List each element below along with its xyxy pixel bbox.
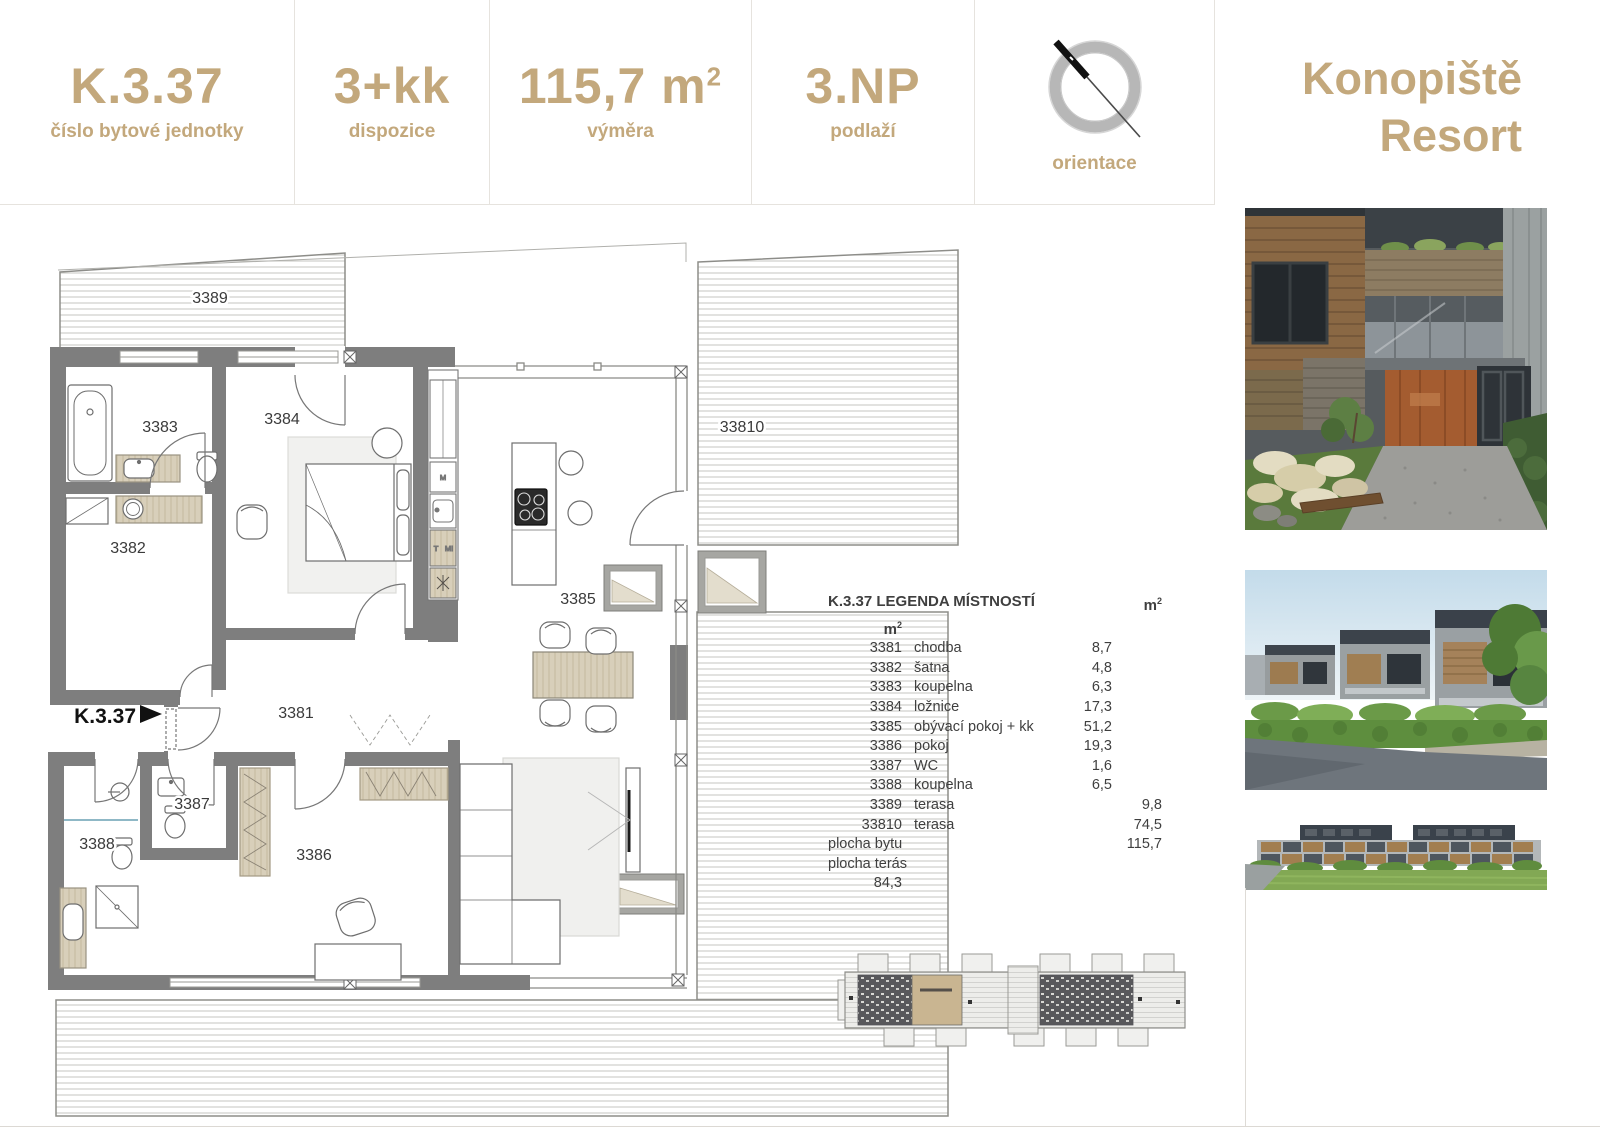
legend-unit-2: m2 [828, 616, 902, 640]
bathroom-3388-fixtures [60, 783, 138, 968]
toilet [165, 814, 185, 838]
elevation-render-graphic [1245, 820, 1547, 890]
entrance-marker: K.3.37 [74, 705, 162, 728]
brand-title: Konopiště Resort [1215, 0, 1600, 205]
basin [63, 904, 83, 940]
appliance-label-mi: MI [445, 544, 453, 553]
legend-row: 3385obývací pokoj + kk51,2 [828, 718, 1162, 738]
area-value: 115,7 m2 [519, 61, 722, 111]
kitchen-appliance-column: M T MI [428, 370, 458, 600]
terrace-bottom-strip [56, 1000, 948, 1116]
legend-row: 3388koupelna6,5 [828, 776, 1162, 796]
appliance-label-m: M [440, 473, 446, 482]
nightstand [372, 428, 402, 458]
street-render-graphic [1245, 570, 1547, 790]
brand-line1: Konopiště [1215, 50, 1522, 107]
legend-unit-1: m2 [1112, 592, 1162, 616]
legend-row: 3383koupelna6,3 [828, 678, 1162, 698]
wardrobe [240, 768, 270, 876]
entrance-door-leaf [166, 709, 176, 749]
mini-highlighted-unit [912, 975, 962, 1025]
closet-3382-fixtures [66, 496, 202, 524]
entrance-render-graphic [1245, 208, 1547, 530]
room-label-3382: 3382 [110, 540, 146, 557]
layout-label: dispozice [349, 121, 436, 143]
layout-value: 3+kk [334, 61, 451, 111]
compass-icon [1034, 29, 1156, 151]
legend-total-apartment: plocha bytu115,7 [828, 835, 1162, 855]
room-label-3389: 3389 [192, 290, 228, 307]
entrance-arrow-icon [140, 705, 162, 723]
legend-row: 3387WC1,6 [828, 757, 1162, 777]
header-strip: K.3.37 číslo bytové jednotky 3+kk dispoz… [0, 0, 1215, 205]
legend-row: 3384ložnice17,3 [828, 698, 1162, 718]
room-label-3385: 3385 [560, 591, 596, 608]
header-cell-area: 115,7 m2 výměra [490, 0, 752, 204]
room-label-33810: 33810 [720, 419, 765, 436]
room-label-3384: 3384 [264, 411, 300, 428]
appliance-label-t: T [434, 544, 439, 553]
hall-closet-mark [350, 715, 430, 745]
bar-stool [568, 501, 592, 525]
window-bench-1 [604, 565, 662, 611]
legend-header-row: K.3.37 LEGENDA MÍSTNOSTÍ m2 m2 [828, 592, 1162, 639]
legend-row: 3382šatna4,8 [828, 659, 1162, 679]
room-label-3386: 3386 [296, 847, 332, 864]
unit-number-value: K.3.37 [70, 61, 223, 111]
legend-row: 3389terasa9,8 [828, 796, 1162, 816]
header-cell-unit-number: K.3.37 číslo bytové jednotky [0, 0, 295, 204]
room-label-3388: 3388 [79, 836, 115, 853]
floor-label: podlaží [830, 121, 895, 143]
desk [315, 944, 401, 980]
header-cell-layout: 3+kk dispozice [295, 0, 490, 204]
legend-row: 3386pokoj19,3 [828, 737, 1162, 757]
header-cell-orientation: orientace [975, 0, 1215, 204]
pillow [397, 470, 409, 510]
toilet [112, 845, 132, 869]
unit-number-label: číslo bytové jednotky [50, 121, 243, 143]
right-column-divider [1245, 888, 1246, 1126]
window-bench-2 [698, 551, 766, 613]
dining-table [533, 652, 633, 698]
living-room-furniture [460, 443, 640, 964]
room-label-3387: 3387 [174, 796, 210, 813]
orientation-label: orientace [1052, 153, 1136, 175]
legend-row: 33810terasa74,5 [828, 816, 1162, 836]
legend-title: K.3.37 LEGENDA MÍSTNOSTÍ [828, 592, 1066, 616]
toilet [197, 456, 217, 482]
mini-unit-cluster-left [858, 975, 912, 1025]
room-legend: K.3.37 LEGENDA MÍSTNOSTÍ m2 m2 3381chodb… [828, 592, 1162, 894]
window-bench-3 [612, 874, 684, 914]
entrance-label: K.3.37 [74, 705, 136, 728]
floor-value: 3.NP [805, 61, 920, 111]
bar-stool [559, 451, 583, 475]
roof-edge-line [58, 243, 686, 270]
brand-line2: Resort [1215, 107, 1522, 164]
room-label-3381: 3381 [278, 705, 314, 722]
header-cell-floor: 3.NP podlaží [752, 0, 975, 204]
area-label: výměra [587, 121, 654, 143]
legend-total-terraces: plocha terás84,3 [828, 855, 1162, 894]
mini-unit-cluster-right [1040, 975, 1133, 1025]
terrace-33810-upper [698, 250, 958, 545]
legend-row: 3381chodba8,7 [828, 639, 1162, 659]
photo-street-render [1245, 570, 1547, 790]
pillow [397, 515, 409, 555]
bed [306, 464, 411, 561]
bedroom-3384-furniture [237, 428, 411, 593]
room-label-3383: 3383 [142, 419, 178, 436]
photo-elevation-render [1245, 820, 1547, 890]
photo-entrance-render [1245, 208, 1547, 530]
page-bottom-border [0, 1126, 1600, 1127]
brochure-page: K.3.37 číslo bytové jednotky 3+kk dispoz… [0, 0, 1600, 1131]
